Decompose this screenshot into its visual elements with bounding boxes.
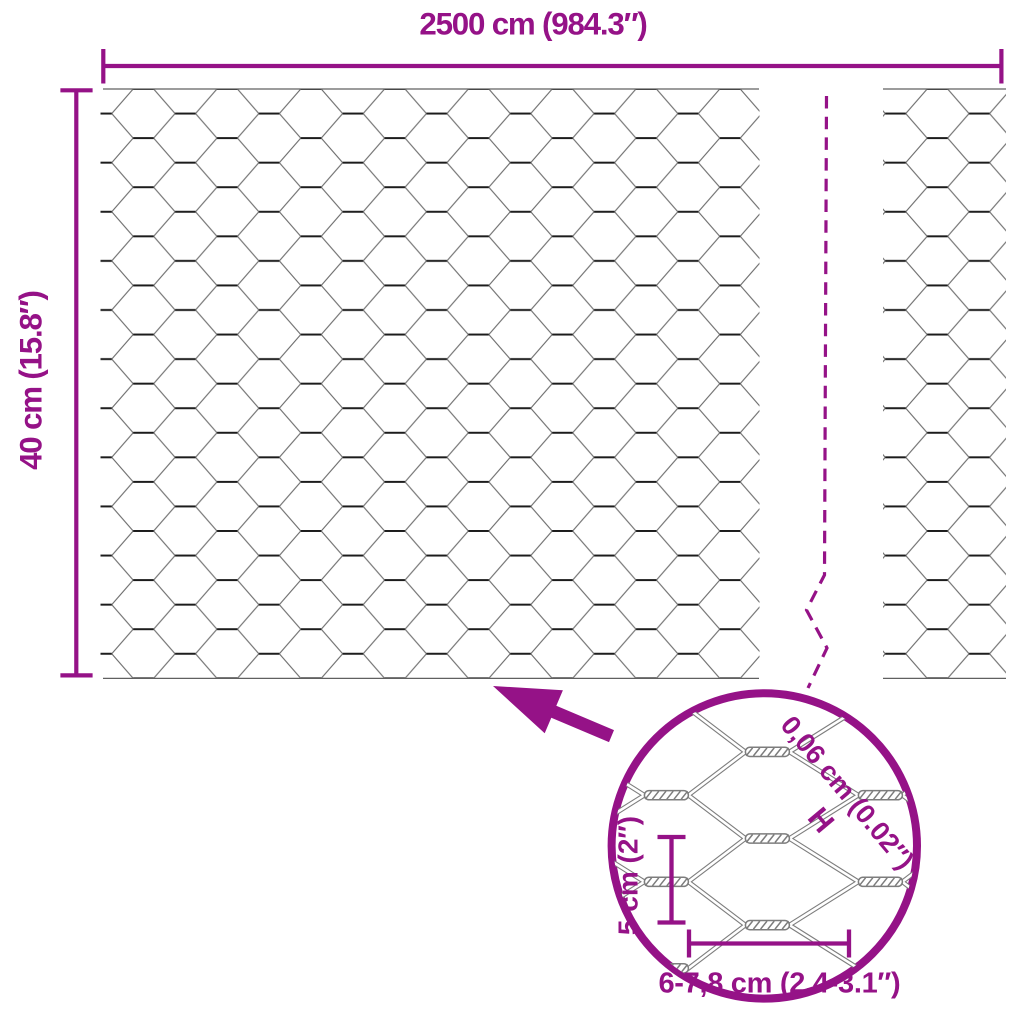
svg-text:6-7,8 cm (2.4-3.1″): 6-7,8 cm (2.4-3.1″) [658, 968, 900, 1000]
svg-text:2500 cm (984.3″): 2500 cm (984.3″) [419, 7, 646, 42]
svg-text:40 cm (15.8″): 40 cm (15.8″) [14, 291, 49, 470]
svg-text:5 cm (2″): 5 cm (2″) [613, 816, 644, 935]
